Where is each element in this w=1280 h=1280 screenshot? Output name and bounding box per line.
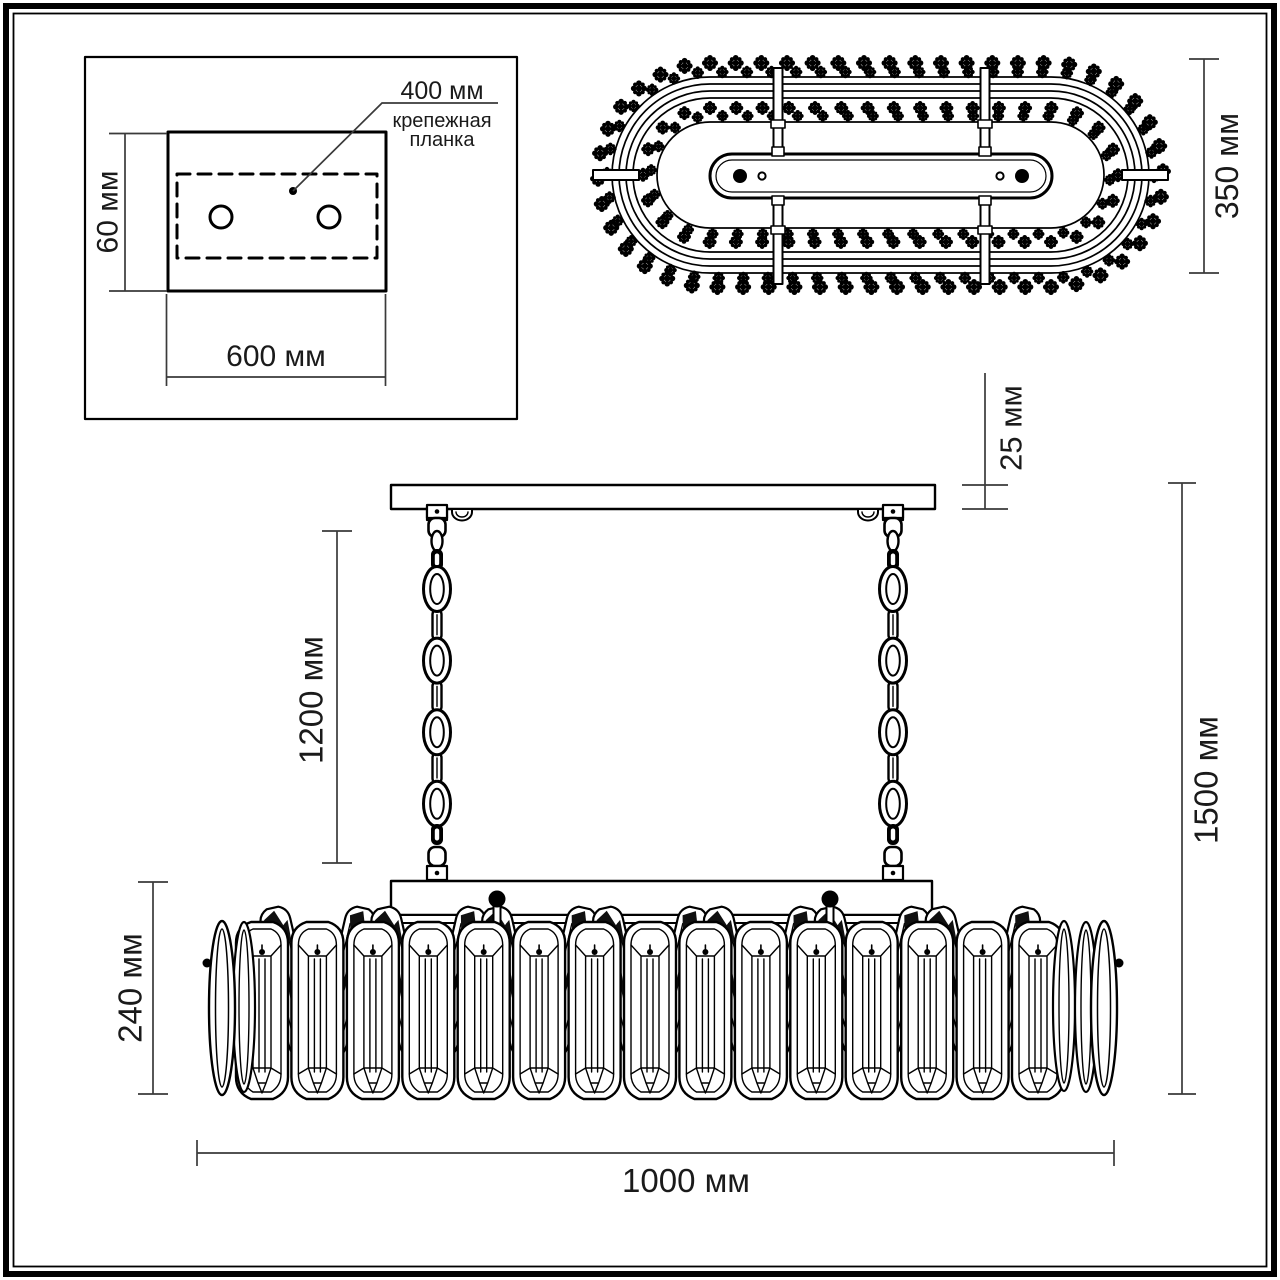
chain [424,505,451,880]
bead [729,101,743,115]
bracket-caption-line2: планка [410,129,476,151]
bracket-screw [891,871,896,876]
large-crystal [735,922,787,1099]
bead [717,110,729,122]
bead [1091,215,1105,229]
end-crystal [1091,921,1117,1095]
chain-twist-slit [435,554,439,566]
bead [1145,213,1161,229]
bead [652,67,668,83]
bead [631,80,647,96]
canopy-plate-outline [168,132,386,291]
canopy-cap-right [858,509,878,521]
bead [1121,238,1134,251]
bead [1132,235,1148,251]
bead [742,110,754,122]
bracket-distance-label: 400 мм [400,77,483,105]
bead [1033,228,1045,240]
bead [1043,279,1059,295]
plate-height-label: 60 мм [92,171,125,254]
chain-twist-slit [435,829,439,841]
bead [613,99,629,115]
bead [692,111,704,123]
top-view-depth-label: 350 мм [1209,113,1245,219]
spec-sheet: 400 мм крепежная планка 60 мм 600 мм [0,0,1280,1280]
large-crystal [846,922,898,1099]
pin-head [822,891,839,908]
large-crystal [957,922,1009,1099]
bead [1114,254,1130,270]
end-crystal [209,921,235,1095]
bead [1044,235,1058,249]
bead [756,101,770,115]
bead [641,142,655,156]
rod-tab [772,196,784,205]
right-spoke [1122,170,1168,180]
crystal-row-front [203,921,1124,1099]
rod-joint [978,120,992,128]
large-crystal [458,922,510,1099]
mounting-detail-panel: 400 мм крепежная планка 60 мм 600 мм [85,57,517,419]
bead [1018,235,1032,249]
bead [703,101,717,115]
bead [600,121,616,137]
narrow-crystal [233,922,255,1092]
rod-joint [771,226,785,234]
bead [753,55,769,71]
large-crystal [790,922,842,1099]
chain-twist-slit [891,829,895,841]
plate-width-label: 600 мм [226,340,326,373]
large-crystal [291,922,343,1099]
bar-screw-left [758,172,765,179]
bar-screw-right [996,172,1003,179]
large-crystal [901,922,953,1099]
chain-shackle [429,847,446,866]
end-knob [1115,959,1124,968]
bead [627,100,640,113]
suspension-chains [424,505,907,880]
large-crystal [679,922,731,1099]
top-view-drawing [590,55,1171,295]
narrow-crystal [1053,921,1075,1091]
large-crystal [624,922,676,1099]
bead [1092,267,1108,283]
bead [702,55,718,71]
mounting-hole-right [318,206,340,228]
bracket-screw [891,509,896,514]
bead [1057,227,1069,239]
large-crystal [569,922,621,1099]
bracket-screw [435,871,440,876]
rod-tab [772,147,784,156]
body-width-label: 1000 мм [622,1162,750,1199]
bar-hole-left [733,169,747,183]
bead [656,121,670,135]
mounting-hole-left [210,206,232,228]
bar-hole-right [1015,169,1029,183]
chain-small-link [888,531,899,551]
bead [1017,279,1033,295]
bead [1106,194,1120,208]
chain-small-link [432,531,443,551]
body-height-label: 240 мм [112,933,149,1043]
canopy-cap-left [452,509,472,521]
bead [677,58,693,74]
bead [992,279,1008,295]
rod-joint [978,226,992,234]
bead [728,55,744,71]
left-spoke [593,170,639,180]
chain [880,505,907,880]
chain-twist-slit [891,554,895,566]
technical-drawing: 400 мм крепежная планка 60 мм 600 мм [0,0,1280,1280]
large-crystal [347,922,399,1099]
pin-head [489,891,506,908]
side-view-drawing [203,485,1124,1099]
ceiling-plate [391,485,935,509]
large-crystal [402,922,454,1099]
end-knob [203,959,212,968]
chain-length-label: 1200 мм [293,636,330,764]
rod-joint [771,120,785,128]
bead [1103,254,1116,267]
rod-tab [979,147,991,156]
chain-shackle [885,847,902,866]
bead [677,106,691,120]
total-height-label: 1500 мм [1188,716,1225,844]
bead [1007,228,1019,240]
bead [992,235,1006,249]
bead [1070,230,1084,244]
bead [1068,276,1084,292]
bracket-screw [435,509,440,514]
rod-tab [979,196,991,205]
large-crystal [513,922,565,1099]
canopy-thickness-label: 25 мм [994,385,1029,471]
bead [646,84,659,97]
